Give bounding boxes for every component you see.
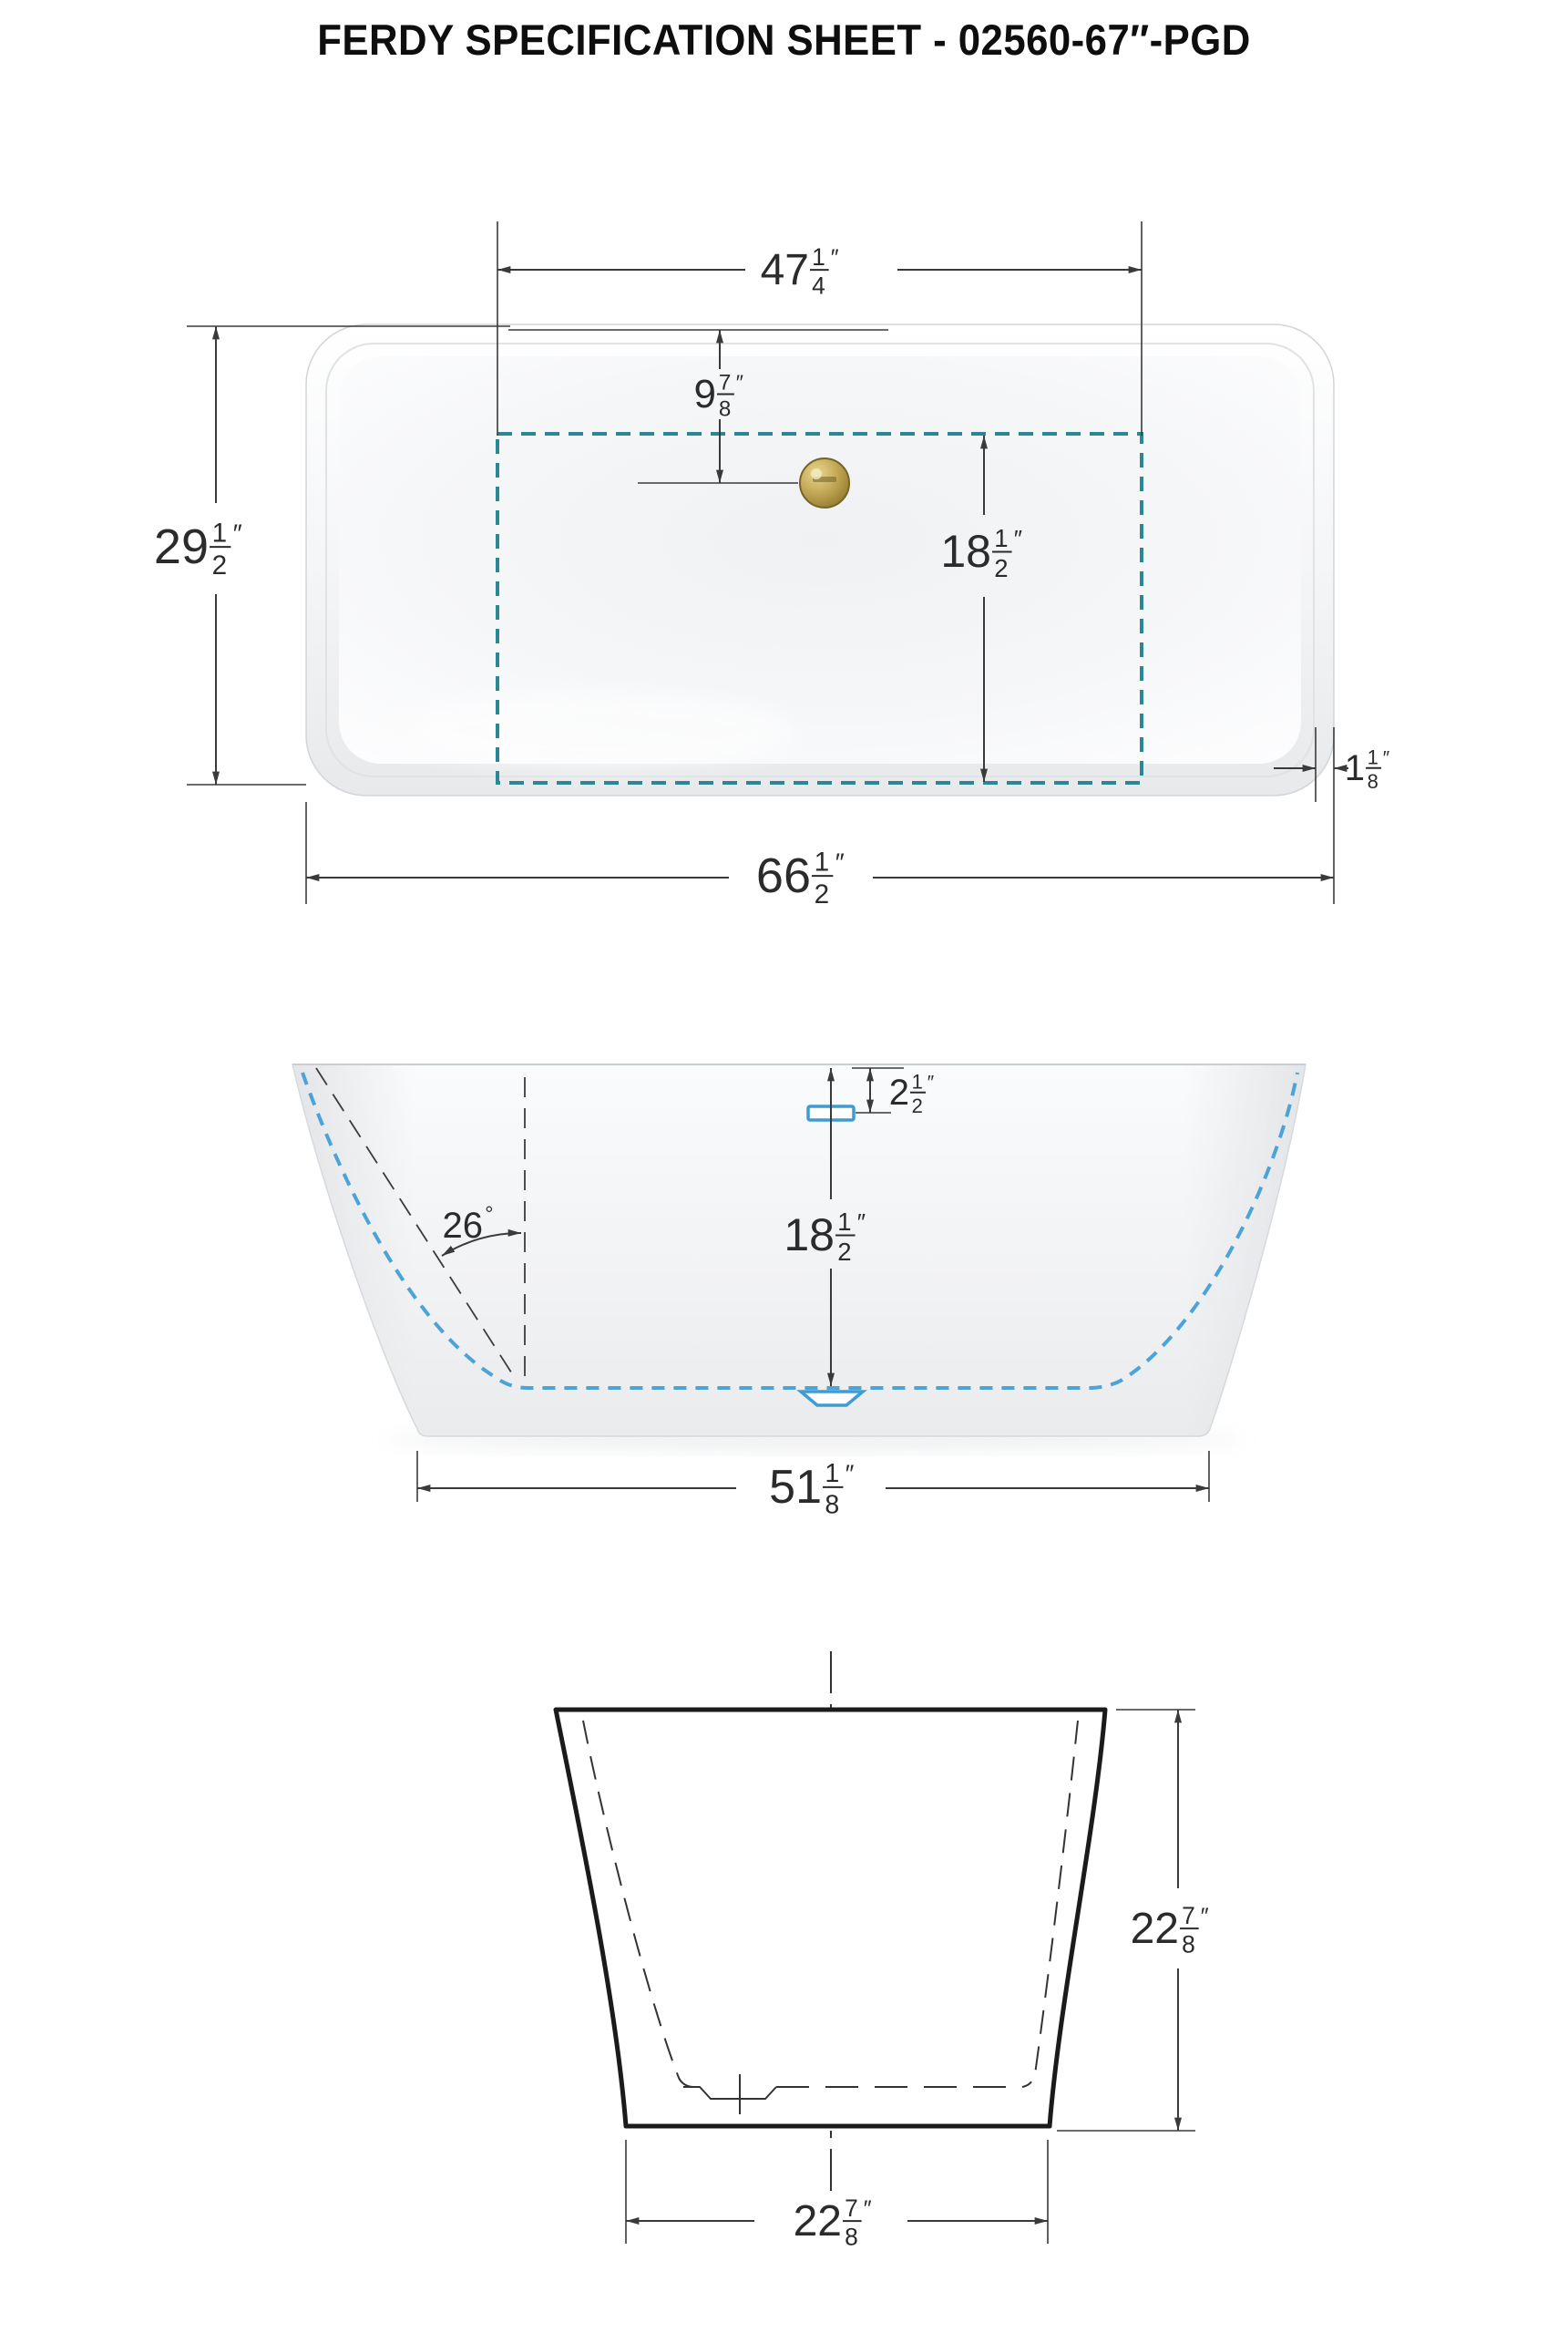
svg-text:1: 1	[212, 518, 228, 548]
svg-text:7: 7	[1182, 1902, 1195, 1929]
svg-text:″: ″	[1383, 747, 1389, 768]
svg-text:2: 2	[912, 1095, 923, 1117]
svg-text:″: ″	[831, 245, 839, 271]
svg-text:1: 1	[815, 847, 830, 877]
svg-text:1: 1	[1368, 745, 1378, 768]
svg-text:″: ″	[845, 1459, 855, 1487]
svg-text:18: 18	[784, 1209, 835, 1260]
svg-text:2: 2	[815, 879, 830, 910]
svg-text:26: 26	[443, 1206, 484, 1246]
svg-text:8: 8	[719, 397, 731, 422]
svg-text:22: 22	[794, 2197, 842, 2246]
svg-text:″: ″	[835, 847, 845, 876]
dim-base-length: 5118″	[417, 1451, 1209, 1519]
end-view: 2278″ 2278″	[556, 1651, 1209, 2251]
dim-label-base-width: 2278″	[794, 2194, 872, 2251]
svg-text:51: 51	[769, 1461, 822, 1514]
svg-text:66: 66	[756, 848, 811, 903]
tub-end-outline	[556, 1710, 1105, 2126]
svg-text:°: °	[485, 1202, 493, 1226]
svg-text:9: 9	[694, 372, 716, 416]
svg-text:47: 47	[761, 246, 809, 294]
dim-base-width: 2278″	[626, 2140, 1048, 2251]
svg-text:1: 1	[994, 524, 1008, 552]
svg-text:″: ″	[864, 2196, 872, 2222]
svg-text:8: 8	[1182, 1931, 1195, 1958]
gold-drain-icon	[800, 458, 849, 508]
svg-text:2: 2	[212, 550, 228, 581]
svg-text:7: 7	[845, 2194, 858, 2222]
svg-text:7: 7	[719, 371, 731, 396]
basin-highlight	[410, 693, 793, 769]
svg-text:1: 1	[837, 1208, 851, 1236]
svg-text:″: ″	[736, 371, 743, 395]
svg-text:29: 29	[154, 519, 209, 574]
spec-sheet-drawing: 4714″ 978″ 2912″ 1812″	[0, 0, 1568, 2333]
svg-text:″: ″	[857, 1208, 866, 1236]
svg-text:2: 2	[837, 1238, 851, 1266]
svg-text:1: 1	[812, 243, 825, 271]
svg-text:8: 8	[1368, 770, 1378, 793]
dim-label-overall-width: 2912″	[154, 518, 242, 581]
top-view: 4714″ 978″ 2912″ 1812″	[154, 221, 1389, 910]
dim-label-rim-thickness: 118″	[1345, 745, 1389, 792]
svg-text:″: ″	[1201, 1904, 1209, 1929]
dim-label-overall-length: 6612″	[756, 847, 845, 910]
svg-text:1: 1	[1345, 748, 1365, 788]
svg-text:1: 1	[912, 1070, 923, 1093]
svg-text:2: 2	[889, 1073, 909, 1113]
svg-text:″: ″	[233, 518, 242, 547]
svg-text:22: 22	[1131, 1905, 1179, 1953]
svg-text:18: 18	[940, 526, 991, 577]
svg-text:8: 8	[825, 1490, 839, 1519]
svg-text:″: ″	[1014, 525, 1022, 552]
side-view: 26° 212″ 1812″ 5118″	[292, 1064, 1306, 1519]
svg-text:4: 4	[812, 272, 825, 300]
svg-text:1: 1	[825, 1459, 839, 1488]
dim-label-inner-length: 4714″	[761, 243, 839, 300]
svg-text:″: ″	[927, 1072, 934, 1093]
dim-label-base-length: 5118″	[769, 1459, 855, 1519]
svg-text:8: 8	[845, 2224, 858, 2251]
dim-overall-length: 6612″	[306, 802, 1334, 910]
dim-label-overall-height: 2278″	[1131, 1902, 1209, 1958]
svg-text:2: 2	[994, 554, 1008, 582]
